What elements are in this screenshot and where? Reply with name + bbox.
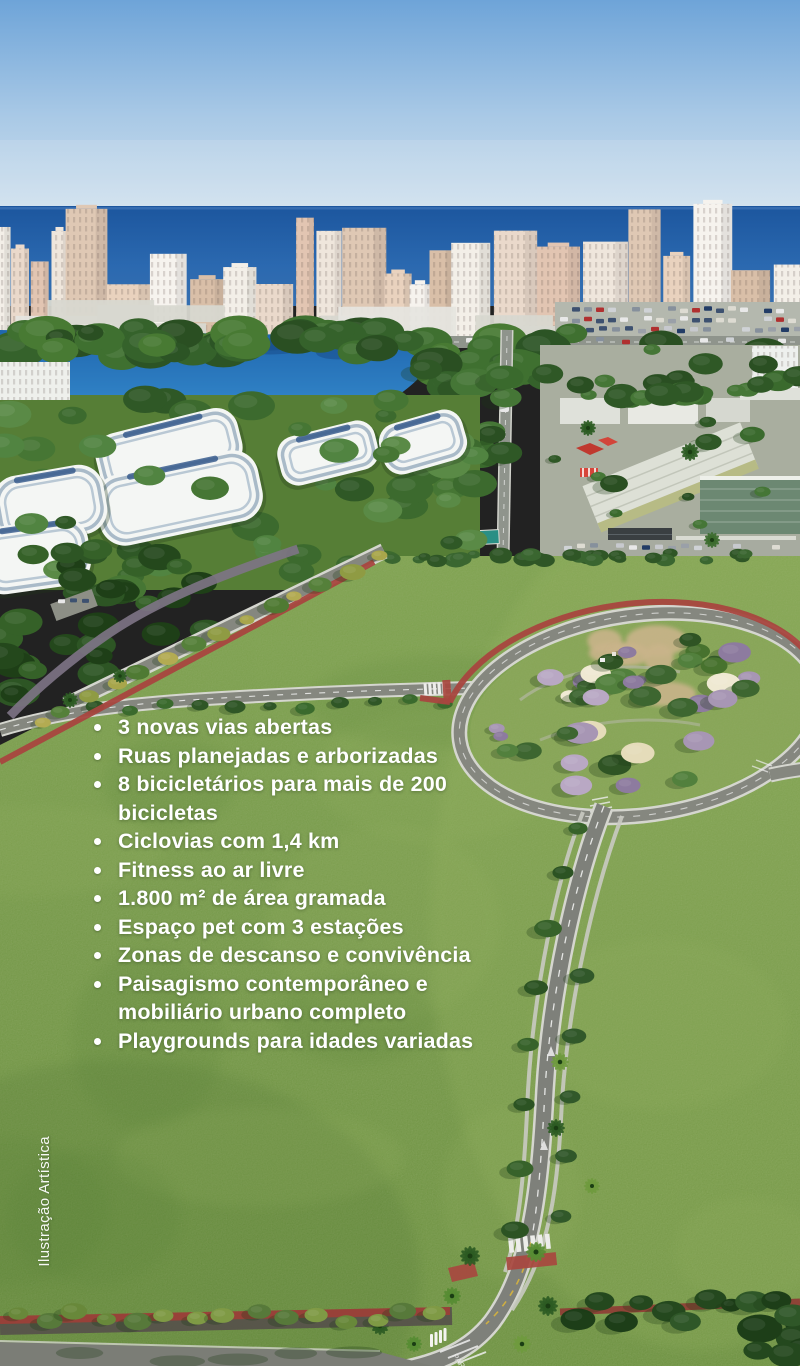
bullet-dot — [94, 981, 101, 988]
ocean-horizon — [0, 207, 800, 210]
feature-text: Ruas planejadas e arborizadas — [118, 742, 534, 771]
sky-haze — [0, 140, 800, 206]
bullet-dot — [94, 952, 101, 959]
bullet-dot — [94, 724, 101, 731]
feature-text: Ciclovias com 1,4 km — [118, 827, 534, 856]
east-exit-road — [770, 769, 800, 775]
feature-text: 1.800 m² de área gramada — [118, 884, 534, 913]
bullet-dot — [94, 895, 101, 902]
feature-item: 1.800 m² de área gramada — [94, 884, 534, 913]
feature-item: Paisagismo contemporâneo e mobiliário ur… — [94, 970, 534, 1027]
feature-text: Fitness ao ar livre — [118, 856, 534, 885]
feature-item: Ciclovias com 1,4 km — [94, 827, 534, 856]
feature-item: Zonas de descanso e convivência — [94, 941, 534, 970]
feature-text: 8 bicicletários para mais de 200 bicicle… — [118, 770, 534, 827]
bullet-dot — [94, 753, 101, 760]
bullet-dot — [94, 867, 101, 874]
feature-item: 3 novas vias abertas — [94, 713, 534, 742]
bullet-dot — [94, 924, 101, 931]
feature-item: 8 bicicletários para mais de 200 bicicle… — [94, 770, 534, 827]
feature-text: Espaço pet com 3 estações — [118, 913, 534, 942]
bullet-dot — [94, 781, 101, 788]
feature-text: Paisagismo contemporâneo e mobiliário ur… — [118, 970, 534, 1027]
scene-illustration: PARE — [0, 0, 800, 1366]
features-list: 3 novas vias abertasRuas planejadas e ar… — [94, 713, 534, 1055]
marketing-aerial-view: PARE 3 novas vias abertasRuas planejadas… — [0, 0, 800, 1366]
feature-item: Playgrounds para idades variadas — [94, 1027, 534, 1056]
feature-text: Zonas de descanso e convivência — [118, 941, 534, 970]
bullet-dot — [94, 838, 101, 845]
feature-text: 3 novas vias abertas — [118, 713, 534, 742]
feature-item: Ruas planejadas e arborizadas — [94, 742, 534, 771]
artistic-illustration-watermark: Ilustração Artística — [36, 1136, 53, 1267]
feature-text: Playgrounds para idades variadas — [118, 1027, 534, 1056]
feature-item: Fitness ao ar livre — [94, 856, 534, 885]
feature-item: Espaço pet com 3 estações — [94, 913, 534, 942]
bullet-dot — [94, 1038, 101, 1045]
